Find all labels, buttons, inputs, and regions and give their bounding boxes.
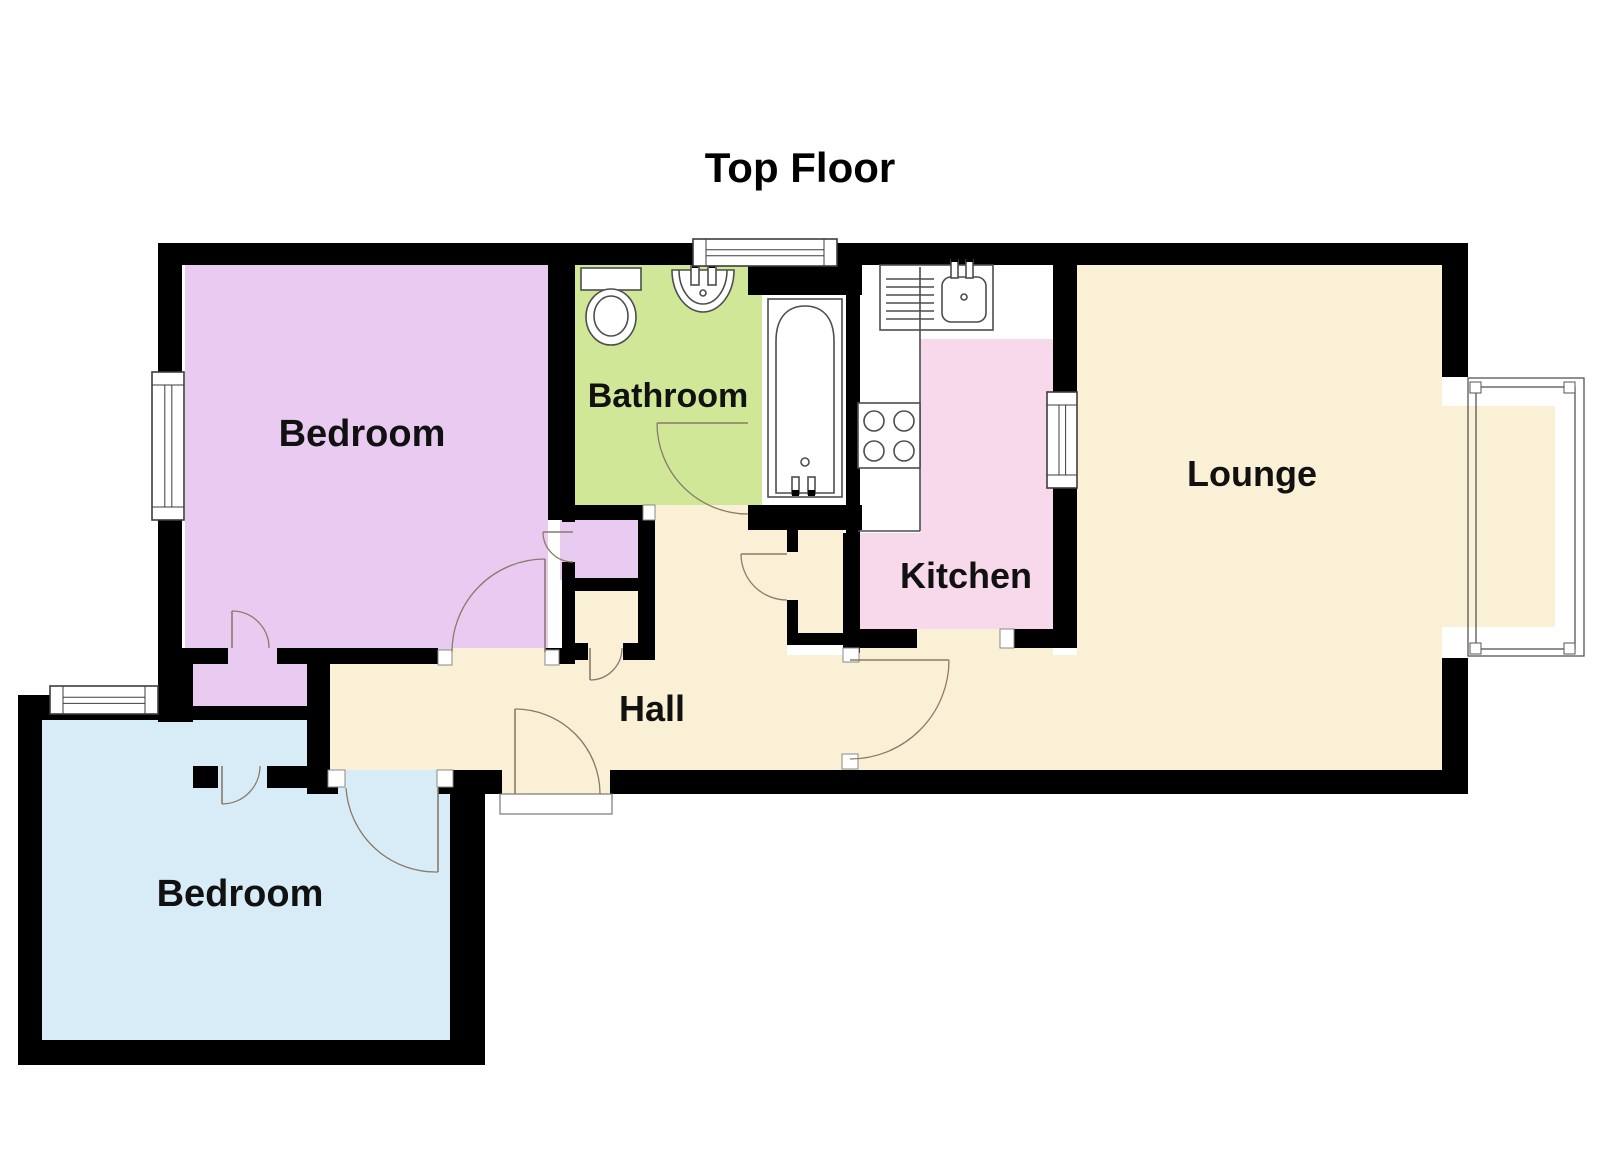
wall (748, 505, 862, 530)
bedroom-bottom-door-gap (338, 770, 438, 796)
wall (787, 528, 798, 552)
door-jamb (438, 650, 452, 665)
wall (610, 770, 1468, 794)
door-jamb (545, 650, 559, 665)
cupboard-cream-gap (588, 643, 623, 660)
wall (748, 265, 862, 295)
kitchen-units-area (858, 265, 920, 533)
wall (548, 505, 643, 520)
door-jamb (643, 505, 655, 520)
door-jamb (328, 770, 345, 787)
wall (158, 648, 228, 664)
bathroom-window (693, 239, 837, 266)
kitchen-tap (966, 260, 973, 278)
wall (450, 770, 485, 1065)
closet-gap-top (228, 648, 277, 664)
entrance-gap (502, 770, 610, 796)
room-label-lounge: Lounge (1187, 453, 1317, 494)
entrance-threshold (500, 794, 612, 814)
wall (193, 766, 218, 788)
wall (548, 265, 575, 505)
wall (562, 578, 638, 591)
toilet-cistern (581, 268, 641, 290)
bedroom-bottom-window (50, 686, 158, 714)
door-jamb (1000, 629, 1014, 648)
hall-cupboard-gap (787, 552, 798, 600)
wall (562, 643, 588, 660)
lounge-bay-window-pad (1564, 643, 1575, 654)
page-title: Top Floor (690, 144, 910, 192)
wall (18, 1040, 485, 1065)
wall (18, 695, 42, 1065)
wall (623, 643, 655, 660)
room-label-bedroom-top: Bedroom (279, 413, 446, 455)
bedroom-top-window (152, 372, 184, 520)
kitchen-tap-tip (966, 257, 973, 262)
wall (843, 629, 917, 648)
sink-tap (691, 266, 699, 285)
lounge-bay-window-pad (1564, 382, 1575, 393)
lounge-bay-window-floor (1442, 406, 1555, 627)
wall (193, 706, 307, 720)
kitchen-hatch-window (1047, 392, 1077, 488)
bath-tap-tip (792, 490, 799, 496)
kitchen-tap (951, 260, 958, 278)
bathtub (768, 299, 842, 497)
wall (787, 600, 798, 633)
cupboard-cream-floor (575, 591, 638, 643)
lounge-bay-window-pad (1470, 643, 1481, 654)
sink-tap (708, 266, 716, 285)
door-jamb (437, 770, 453, 787)
bedroom-top-floor (185, 265, 548, 664)
wall (638, 505, 655, 660)
wall (787, 633, 843, 645)
wall (277, 648, 438, 664)
floor-plan: Top Floor BedroomBathroomKitchenLoungeHa… (0, 0, 1600, 1163)
room-label-bathroom: Bathroom (588, 377, 749, 415)
bath-tap-tip (808, 490, 815, 496)
room-label-bedroom-bottom: Bedroom (157, 873, 324, 915)
hall-cupboard-floor (798, 528, 843, 633)
lounge-bay-window-pad (1470, 382, 1481, 393)
kitchen-tap-tip (951, 257, 958, 262)
room-label-hall: Hall (619, 688, 685, 729)
door-jamb (842, 754, 858, 769)
room-label-kitchen: Kitchen (900, 555, 1032, 596)
